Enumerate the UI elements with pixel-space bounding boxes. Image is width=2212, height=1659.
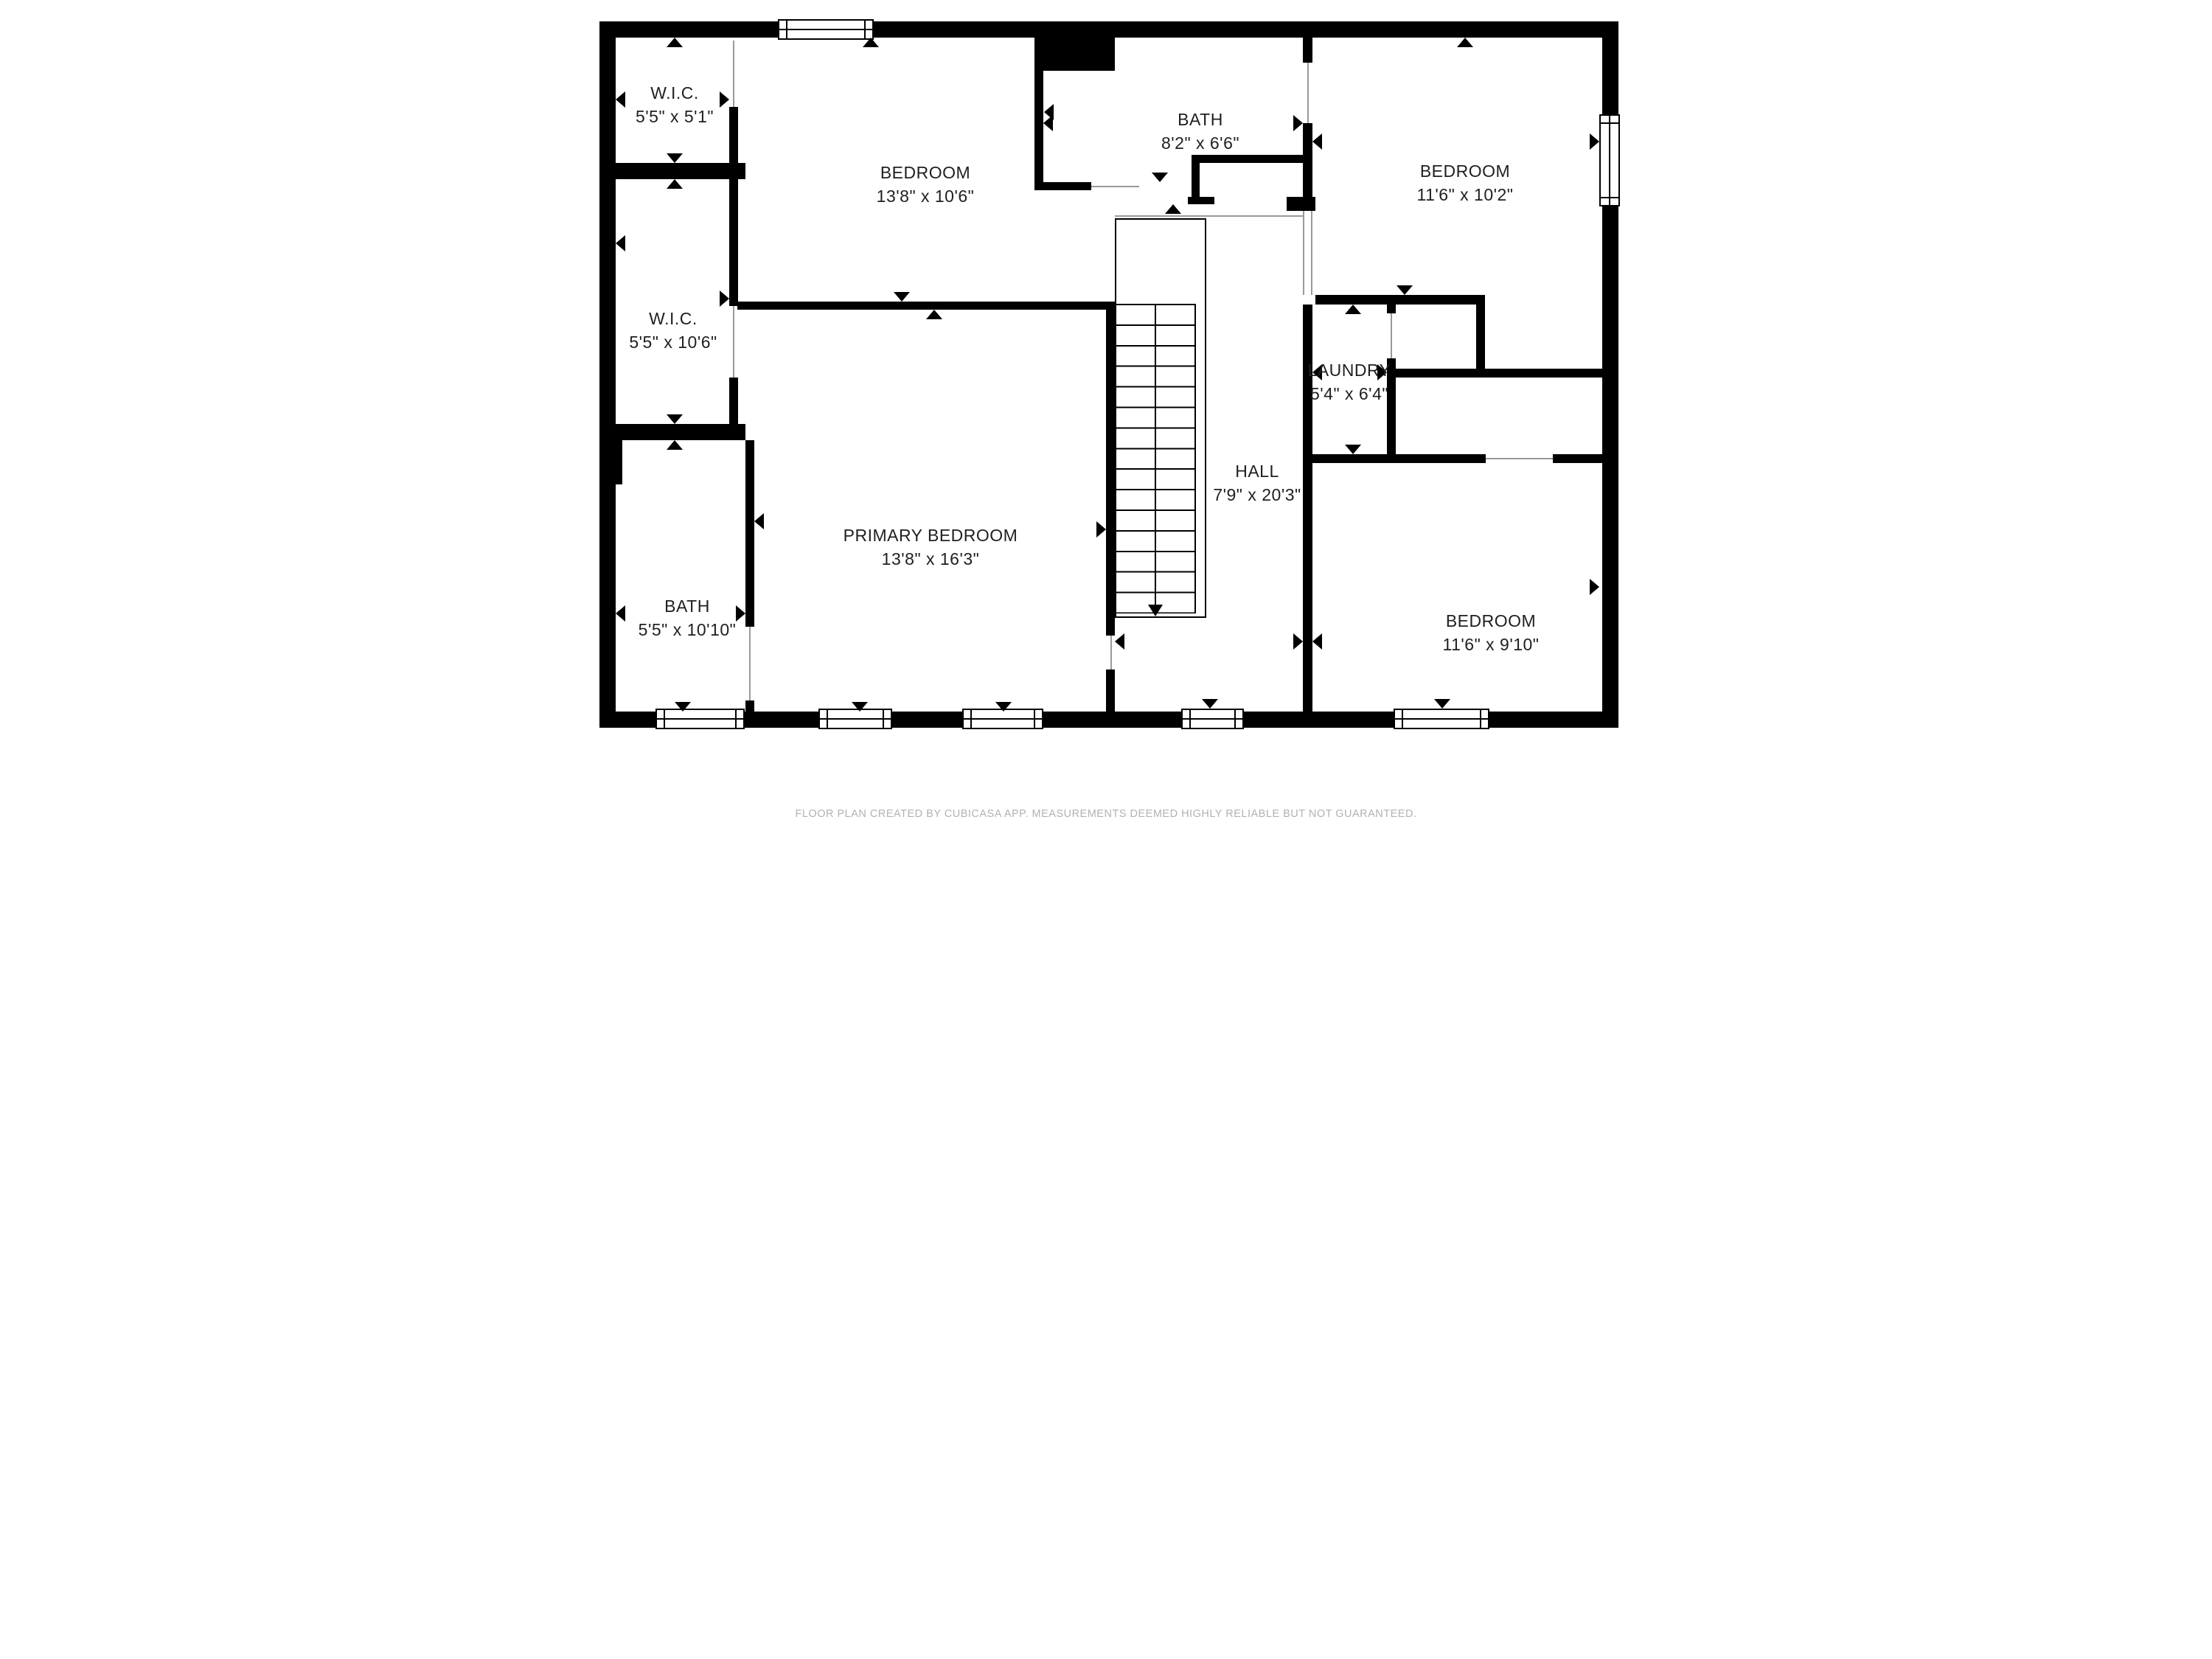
wall-wic-top-right	[729, 107, 738, 163]
room-label-primary-bedroom: PRIMARY BEDROOM 13'8" x 16'3"	[844, 524, 1018, 571]
room-dims: 11'6" x 9'10"	[1443, 633, 1540, 656]
measure-arrow	[667, 179, 683, 189]
floor-plan-canvas: W.I.C. 5'5" x 5'1" BEDROOM 13'8" x 10'6"…	[553, 0, 1659, 829]
measure-arrow	[1590, 133, 1599, 150]
room-dims: 5'5" x 5'1"	[636, 105, 714, 128]
room-label-laundry: LAUNDRY 5'4" x 6'4"	[1308, 358, 1391, 406]
room-label-bath-bottom: BATH 5'5" x 10'10"	[639, 594, 737, 641]
measure-arrow	[1397, 285, 1413, 295]
measure-arrow	[754, 513, 764, 529]
room-name: BATH	[639, 594, 737, 618]
room-name: W.I.C.	[629, 307, 717, 330]
wall-bedroom-primary-divider	[737, 302, 1115, 310]
room-name: BEDROOM	[877, 161, 975, 184]
measure-arrow	[1345, 305, 1361, 314]
measure-arrow	[852, 702, 868, 712]
door-opening-wic-top	[733, 41, 734, 107]
room-dims: 13'8" x 10'6"	[877, 184, 975, 208]
room-name: PRIMARY BEDROOM	[844, 524, 1018, 547]
wall-bath-top-bottom	[1034, 182, 1091, 190]
measure-arrow	[1152, 173, 1168, 182]
wall-closet-divider-vert	[1476, 305, 1485, 369]
exterior-wall-left	[599, 21, 616, 728]
wall-plane-line-a	[1303, 211, 1304, 295]
window-bath-bottom	[655, 709, 745, 729]
measure-arrow	[1115, 633, 1124, 650]
footer-disclaimer: FLOOR PLAN CREATED BY CUBICASA APP. MEAS…	[553, 808, 1659, 820]
wall-hall-right-upper-b	[1303, 123, 1312, 211]
room-label-wic-top: W.I.C. 5'5" x 5'1"	[636, 81, 714, 128]
wall-bath-notch	[613, 440, 622, 484]
room-label-wic-mid: W.I.C. 5'5" x 10'6"	[629, 307, 717, 354]
wall-laundry-bottom	[1303, 454, 1486, 463]
staircase-right-line	[1194, 304, 1196, 613]
window-hall-bottom	[1181, 709, 1244, 729]
wall-wic-divider	[599, 163, 745, 179]
wall-plane-line-b	[1311, 211, 1312, 295]
measure-arrow	[1312, 633, 1322, 650]
room-name: BATH	[1161, 108, 1239, 131]
measure-arrow	[720, 91, 729, 108]
wall-bath-right-a	[745, 440, 754, 627]
measure-arrow	[667, 414, 683, 424]
measure-arrow	[1165, 204, 1181, 214]
measure-arrow	[667, 153, 683, 163]
door-opening-closet-bottom	[1486, 458, 1553, 459]
measure-arrow	[667, 440, 683, 450]
window-primary-1	[818, 709, 892, 729]
room-name: LAUNDRY	[1308, 358, 1391, 382]
measure-arrow	[1345, 445, 1361, 454]
wall-nook-left	[1192, 163, 1200, 197]
wall-stairs-left-b	[1106, 669, 1115, 712]
window-top-bedroom	[778, 19, 874, 40]
room-label-bedroom-bottom-right: BEDROOM 11'6" x 9'10"	[1443, 609, 1540, 656]
room-dims: 5'5" x 10'6"	[629, 330, 717, 354]
window-primary-2	[962, 709, 1043, 729]
door-opening-primary-hall	[1110, 636, 1112, 669]
wall-bath-top-left	[1034, 71, 1043, 182]
room-name: W.I.C.	[636, 81, 714, 105]
measure-arrow	[1434, 699, 1450, 709]
room-dims: 7'9" x 20'3"	[1213, 483, 1301, 507]
measure-arrow	[736, 605, 745, 622]
measure-arrow	[1293, 115, 1303, 131]
measure-arrow	[1312, 133, 1322, 150]
measure-arrow	[667, 38, 683, 47]
measure-arrow	[1293, 633, 1303, 650]
door-opening-bath-bottom	[749, 627, 751, 700]
hall-landing-line	[1115, 215, 1303, 217]
room-dims: 11'6" x 10'2"	[1417, 183, 1514, 206]
measure-arrow	[894, 292, 910, 302]
room-dims: 5'4" x 6'4"	[1308, 382, 1391, 406]
door-opening-bath-top	[1091, 186, 1139, 187]
wall-wic-mid-right-a	[729, 179, 738, 306]
measure-arrow	[1043, 115, 1053, 131]
room-dims: 13'8" x 16'3"	[844, 547, 1018, 571]
measure-arrow	[675, 702, 691, 712]
room-name: BEDROOM	[1417, 159, 1514, 183]
room-label-bedroom-right: BEDROOM 11'6" x 10'2"	[1417, 159, 1514, 206]
measure-arrow	[616, 91, 625, 108]
wall-wic-bath-divider	[599, 424, 745, 440]
wall-closet-bottom-right	[1553, 454, 1618, 463]
wall-chimney-block	[1034, 21, 1115, 71]
wall-bedroom-right-bottom	[1315, 295, 1485, 305]
door-opening-laundry-closet	[1391, 313, 1392, 358]
measure-arrow	[1202, 699, 1218, 709]
wall-hall-right-lower	[1303, 463, 1312, 712]
measure-arrow	[995, 702, 1012, 712]
door-opening-bedroom-right	[1307, 63, 1309, 123]
wall-nook-top	[1192, 155, 1312, 163]
staircase-down-arrow	[1148, 605, 1163, 616]
door-opening-wic-mid	[733, 306, 734, 378]
room-name: HALL	[1213, 459, 1301, 483]
measure-arrow	[616, 605, 625, 622]
measure-arrow	[926, 310, 942, 319]
wall-laundry-right-a	[1387, 305, 1396, 313]
measure-arrow	[1457, 38, 1473, 47]
measure-arrow	[616, 235, 625, 251]
wall-bath-right-b	[745, 700, 754, 712]
measure-arrow	[1590, 579, 1599, 595]
room-label-hall: HALL 7'9" x 20'3"	[1213, 459, 1301, 507]
room-dims: 5'5" x 10'10"	[639, 618, 737, 641]
measure-arrow	[1096, 521, 1106, 538]
wall-hall-right-upper-a	[1303, 38, 1312, 63]
wall-closet-mid-horiz	[1387, 369, 1618, 378]
room-dims: 8'2" x 6'6"	[1161, 131, 1239, 155]
measure-arrow	[863, 38, 879, 47]
measure-arrow	[720, 291, 729, 307]
staircase-center-line	[1155, 304, 1156, 609]
room-name: BEDROOM	[1443, 609, 1540, 633]
room-label-bedroom-top: BEDROOM 13'8" x 10'6"	[877, 161, 975, 208]
window-right-bedroom	[1599, 114, 1620, 206]
room-label-bath-top: BATH 8'2" x 6'6"	[1161, 108, 1239, 155]
window-bedroom-br	[1394, 709, 1489, 729]
wall-stairs-left-a	[1106, 302, 1115, 636]
wall-nook-stub-left	[1188, 197, 1214, 204]
